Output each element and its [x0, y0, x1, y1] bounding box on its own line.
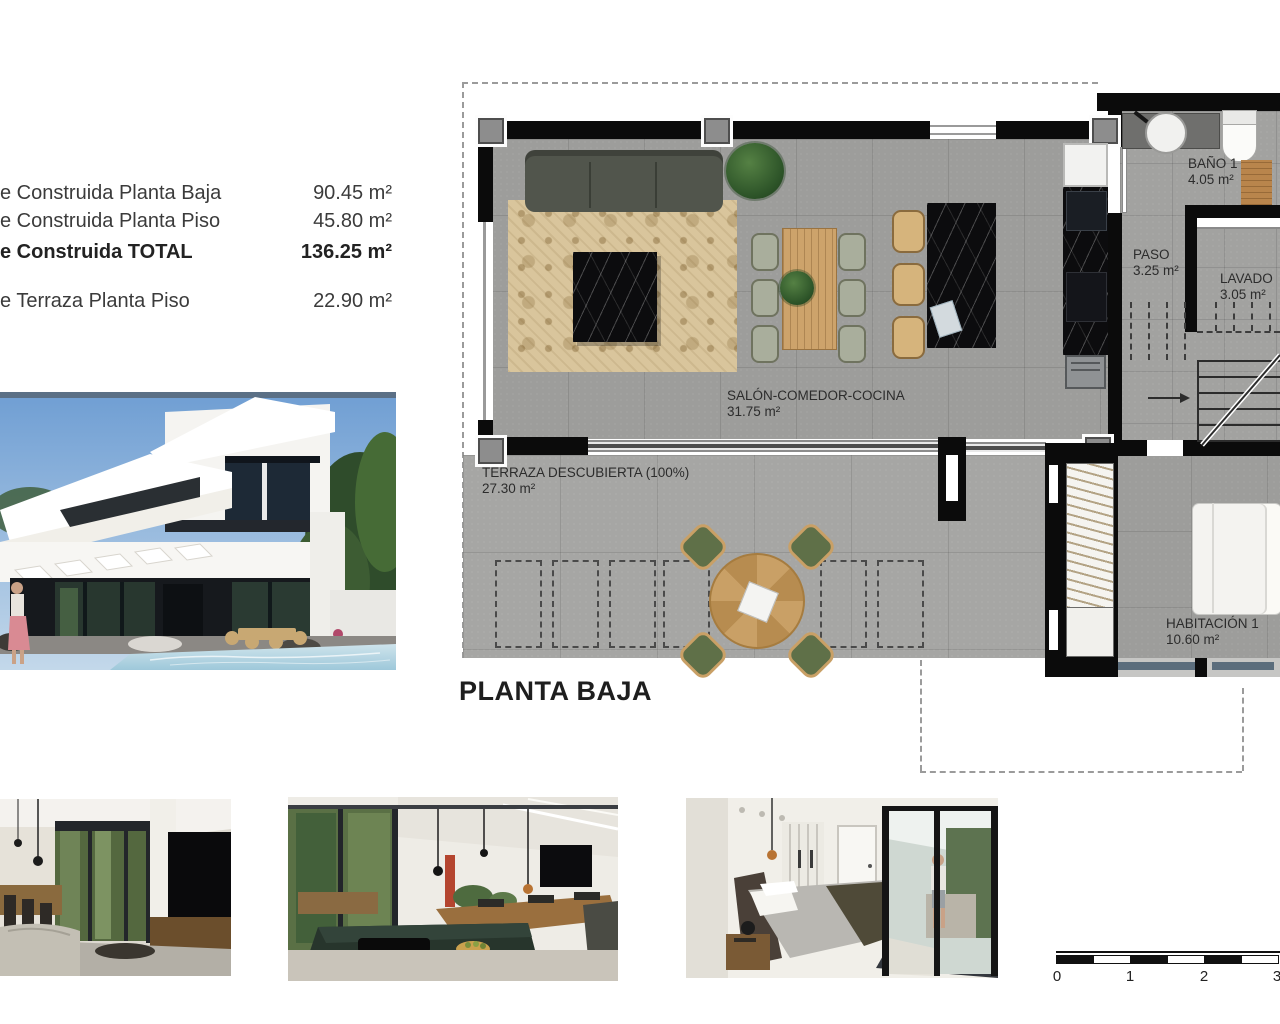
room-label-terraza: TERRAZA DESCUBIERTA (100%) 27.30 m² [482, 465, 689, 496]
scale-bar-segment [1241, 955, 1279, 964]
planter-box [609, 560, 656, 648]
wardrobe-louver [1066, 463, 1114, 609]
dining-chair [751, 325, 779, 363]
scale-bar-segment [1167, 955, 1205, 964]
wall-niche [1049, 465, 1058, 503]
interior-photo-living [0, 799, 231, 976]
pillar [1092, 118, 1118, 144]
kitchen-sink [1065, 355, 1106, 389]
summary-value: 22.90 m² [313, 290, 392, 313]
table-plant [780, 271, 814, 305]
scale-label: 0 [1053, 968, 1061, 985]
pillar [478, 438, 504, 464]
bar-stool [892, 263, 925, 306]
window-glass [1212, 662, 1274, 670]
planter-box [820, 560, 867, 648]
dining-chair [838, 325, 866, 363]
room-label-bano: BAÑO 1 4.05 m² [1188, 156, 1238, 187]
dining-chair [838, 279, 866, 317]
scale-label: 1 [1126, 968, 1134, 985]
brochure-page: e Construida Planta Baja 90.45 m² e Cons… [0, 0, 1280, 1024]
room-label-lavado: LAVADO 3.05 m² [1220, 271, 1273, 302]
planter-box [877, 560, 924, 648]
window [930, 121, 996, 139]
interior-photo-kitchen [288, 797, 618, 981]
scale-bar-segment [1056, 955, 1094, 964]
fridge [1063, 143, 1108, 187]
villa-exterior-render [0, 392, 396, 670]
scale-bar-segment [1093, 955, 1131, 964]
wardrobe-cabinet [1066, 607, 1114, 657]
summary-row-total: e Construida TOTAL 136.25 m² [0, 241, 392, 267]
plot-boundary [920, 660, 922, 771]
summary-row: e Construida Planta Piso 45.80 m² [0, 210, 392, 236]
coffee-table [573, 252, 657, 342]
scale-label: 3 [1273, 968, 1280, 985]
dining-chair [751, 279, 779, 317]
scale-label: 2 [1200, 968, 1208, 985]
bed [1192, 503, 1280, 615]
summary-label: e Construida TOTAL [0, 241, 193, 263]
stairs-annotation [1118, 295, 1280, 450]
plant [726, 143, 784, 199]
summary-label: e Terraza Planta Piso [0, 290, 190, 312]
scale-bar-segment [1204, 955, 1242, 964]
summary-row: e Terraza Planta Piso 22.90 m² [0, 290, 392, 316]
wall-segment [492, 437, 588, 455]
planter-box [495, 560, 542, 648]
appliance [1066, 272, 1107, 322]
planter-box [552, 560, 599, 648]
bar-stool [892, 210, 925, 253]
window [478, 222, 493, 420]
pillar [478, 118, 504, 144]
oven [1066, 191, 1107, 231]
toilet-tank [1222, 110, 1257, 125]
dining-chair [751, 233, 779, 271]
scale-bar-segment [1130, 955, 1168, 964]
summary-value: 90.45 m² [313, 182, 392, 205]
room-label-salon: SALÓN-COMEDOR-COCINA 31.75 m² [727, 388, 905, 419]
plot-boundary [920, 771, 1242, 773]
room-label-paso: PASO 3.25 m² [1133, 247, 1179, 278]
plot-boundary [462, 82, 1098, 84]
sliding-door-track [1188, 218, 1280, 229]
bath-mat [1241, 160, 1272, 205]
wall-segment [1097, 93, 1280, 111]
scale-bar-rule [1056, 951, 1280, 953]
wash-basin [1145, 112, 1187, 154]
room-label-habitacion: HABITACIÓN 1 10.60 m² [1166, 616, 1259, 647]
plan-title: PLANTA BAJA [459, 676, 652, 707]
wall-segment [1195, 658, 1207, 677]
summary-label: e Construida Planta Piso [0, 210, 220, 232]
wall-niche [1049, 610, 1058, 650]
bar-stool [892, 316, 925, 359]
dining-chair [838, 233, 866, 271]
summary-row: e Construida Planta Baja 90.45 m² [0, 182, 392, 208]
sofa [525, 150, 723, 212]
pillar [704, 118, 730, 144]
bed-fold [1212, 503, 1214, 613]
plot-boundary [1242, 688, 1244, 771]
summary-value: 45.80 m² [313, 210, 392, 233]
sliding-glass-door [588, 440, 938, 452]
wall-segment [1185, 205, 1280, 218]
door-leaf [1122, 147, 1127, 213]
wall-segment [478, 121, 1118, 139]
sliding-glass-door [966, 442, 1046, 452]
wall-niche [946, 455, 958, 501]
interior-photo-bedroom [686, 798, 998, 978]
summary-value: 136.25 m² [301, 241, 392, 264]
summary-label: e Construida Planta Baja [0, 182, 221, 204]
